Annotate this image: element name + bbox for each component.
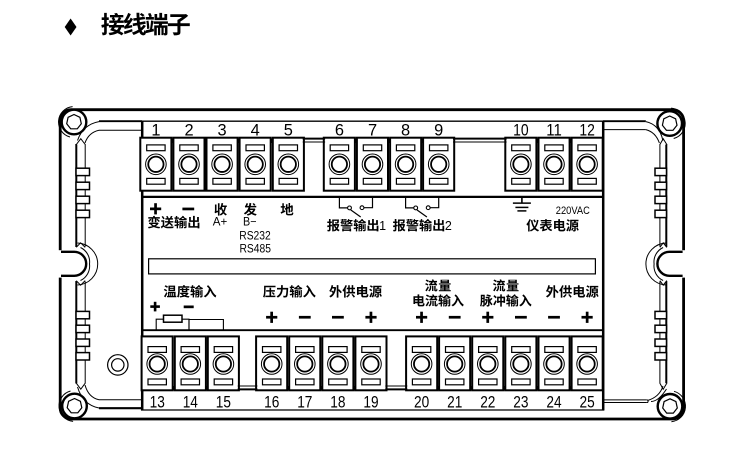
svg-text:16: 16	[264, 393, 279, 411]
svg-text:1: 1	[151, 122, 160, 140]
svg-text:25: 25	[580, 393, 595, 411]
svg-text:RS232: RS232	[239, 230, 271, 242]
svg-text:19: 19	[363, 393, 378, 411]
svg-text:RS485: RS485	[239, 243, 271, 255]
svg-text:7: 7	[368, 122, 377, 140]
svg-text:15: 15	[216, 393, 231, 411]
svg-text:6: 6	[335, 122, 344, 140]
svg-text:20: 20	[414, 393, 429, 411]
svg-text:2: 2	[184, 122, 193, 140]
svg-text:1: 1	[379, 219, 386, 233]
svg-text:13: 13	[150, 393, 165, 411]
svg-text:4: 4	[251, 122, 260, 140]
svg-text:22: 22	[480, 393, 495, 411]
svg-text:12: 12	[579, 122, 595, 140]
svg-text:11: 11	[546, 122, 562, 140]
svg-text:24: 24	[546, 393, 561, 411]
svg-text:17: 17	[297, 393, 312, 411]
svg-text:B−: B−	[243, 217, 257, 229]
svg-text:21: 21	[447, 393, 462, 411]
svg-text:220VAC: 220VAC	[556, 205, 590, 217]
svg-text:10: 10	[513, 122, 529, 140]
svg-text:A+: A+	[213, 217, 228, 229]
svg-text:23: 23	[513, 393, 528, 411]
svg-text:2: 2	[445, 219, 452, 233]
svg-text:14: 14	[183, 393, 198, 411]
svg-text:5: 5	[284, 122, 293, 140]
svg-text:18: 18	[330, 393, 345, 411]
svg-text:3: 3	[218, 122, 227, 140]
svg-text:9: 9	[434, 122, 443, 140]
svg-text:8: 8	[401, 122, 410, 140]
